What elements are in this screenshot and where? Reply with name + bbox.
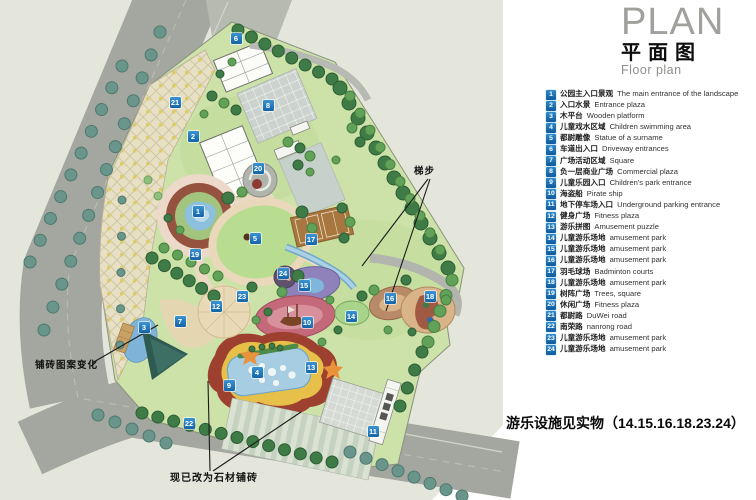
- legend-item-18: 18儿童游乐场地amusement park: [546, 278, 754, 289]
- legend-number: 9: [546, 178, 556, 188]
- legend-item-23: 23儿童游乐场地amusement park: [546, 333, 754, 344]
- annotation-paving-change: 铺砖图案变化: [35, 357, 98, 371]
- legend-label: 游乐拼图Amusement puzzle: [560, 222, 659, 232]
- map-marker-15: 15: [299, 280, 310, 291]
- legend-item-3: 3木平台Wooden platform: [546, 111, 754, 122]
- map-marker-7: 7: [175, 316, 186, 327]
- map-marker-8: 8: [263, 100, 274, 111]
- map-marker-13: 13: [306, 362, 317, 373]
- legend-number: 22: [546, 322, 556, 332]
- map-marker-2: 2: [188, 131, 199, 142]
- legend-label: 儿童游乐场地amusement park: [560, 255, 666, 265]
- legend-number: 10: [546, 189, 556, 199]
- map-marker-22: 22: [184, 418, 195, 429]
- legend-label: 儿童乐园入口Children's park entrance: [560, 178, 692, 188]
- legend-item-15: 15儿童游乐场地amusement park: [546, 244, 754, 255]
- legend-number: 23: [546, 334, 556, 344]
- legend-label: 车道出入口Driveway entrances: [560, 144, 669, 154]
- legend-label: 公园主入口景观The main entrance of the landscap…: [560, 89, 738, 99]
- map-marker-11: 11: [368, 426, 379, 437]
- legend-item-1: 1公园主入口景观The main entrance of the landsca…: [546, 89, 754, 100]
- legend-number: 8: [546, 167, 556, 177]
- legend-label: 儿童游乐场地amusement park: [560, 244, 666, 254]
- legend-number: 18: [546, 278, 556, 288]
- legend-item-22: 22南荣路nanrong road: [546, 322, 754, 333]
- legend-number: 14: [546, 234, 556, 244]
- legend-number: 20: [546, 300, 556, 310]
- legend-item-11: 11地下停车场入口Underground parking entrance: [546, 200, 754, 211]
- map-marker-3: 3: [139, 322, 150, 333]
- legend-label: 都尉雕像Statue of a surname: [560, 133, 663, 143]
- legend-number: 1: [546, 90, 556, 100]
- legend-label: 海盗船Pirate ship: [560, 189, 623, 199]
- legend-item-6: 6车道出入口Driveway entrances: [546, 144, 754, 155]
- map-marker-24: 24: [278, 268, 289, 279]
- map-marker-16: 16: [385, 293, 396, 304]
- legend-number: 15: [546, 245, 556, 255]
- legend-item-10: 10海盗船Pirate ship: [546, 189, 754, 200]
- legend-label: 儿童游乐场地amusement park: [560, 333, 666, 343]
- map-marker-18: 18: [425, 291, 436, 302]
- map-marker-6: 6: [231, 33, 242, 44]
- title-floor-plan: Floor plan: [621, 64, 751, 77]
- map-marker-20: 20: [253, 163, 264, 174]
- map-marker-5: 5: [250, 233, 261, 244]
- map-marker-17: 17: [306, 234, 317, 245]
- legend-item-9: 9儿童乐园入口Children's park entrance: [546, 178, 754, 189]
- legend-item-12: 12健身广场Fitness plaza: [546, 211, 754, 222]
- legend-label: 南荣路nanrong road: [560, 322, 632, 332]
- legend-item-13: 13游乐拼图Amusement puzzle: [546, 222, 754, 233]
- legend-number: 2: [546, 101, 556, 111]
- floor-plan-sheet: 梯步 铺砖图案变化 现已改为石材铺砖 123456789101112131415…: [0, 0, 756, 500]
- legend-item-19: 19树阵广场Trees, square: [546, 289, 754, 300]
- site-plan-drawing: [0, 0, 540, 500]
- legend-number: 3: [546, 112, 556, 122]
- map-marker-21: 21: [170, 97, 181, 108]
- legend-number: 16: [546, 256, 556, 266]
- legend-number: 5: [546, 134, 556, 144]
- legend-item-14: 14儿童游乐场地amusement park: [546, 233, 754, 244]
- map-marker-23: 23: [237, 291, 248, 302]
- legend-label: 负一层商业广场Commercial plaza: [560, 167, 678, 177]
- legend-number: 4: [546, 123, 556, 133]
- legend-label: 羽毛球场Badminton courts: [560, 267, 653, 277]
- map-marker-10: 10: [302, 317, 313, 328]
- legend-item-4: 4儿童戏水区域Children swimming area: [546, 122, 754, 133]
- facilities-note: 游乐设施见实物（14.15.16.18.23.24）: [506, 413, 756, 433]
- annotation-stone-paving: 现已改为石材铺砖: [170, 469, 258, 484]
- legend-item-5: 5都尉雕像Statue of a surname: [546, 133, 754, 144]
- legend-label: 树阵广场Trees, square: [560, 289, 641, 299]
- map-marker-19: 19: [190, 249, 201, 260]
- map-marker-14: 14: [346, 311, 357, 322]
- legend-item-16: 16儿童游乐场地amusement park: [546, 255, 754, 266]
- legend-item-2: 2入口水景Entrance plaza: [546, 100, 754, 111]
- legend-label: 儿童游乐场地amusement park: [560, 344, 666, 354]
- legend-number: 6: [546, 145, 556, 155]
- legend-item-24: 24儿童游乐场地amusement park: [546, 344, 754, 355]
- legend-number: 7: [546, 156, 556, 166]
- legend-number: 21: [546, 311, 556, 321]
- map-marker-12: 12: [211, 301, 222, 312]
- legend-label: 木平台Wooden platform: [560, 111, 644, 121]
- legend-number: 19: [546, 289, 556, 299]
- map-marker-1: 1: [193, 206, 204, 217]
- legend-label: 入口水景Entrance plaza: [560, 100, 645, 110]
- legend-label: 健身广场Fitness plaza: [560, 211, 639, 221]
- legend-label: 都尉路DuWei road: [560, 311, 627, 321]
- legend-number: 11: [546, 200, 556, 210]
- title-plan: PLAN: [621, 2, 751, 42]
- legend-number: 12: [546, 212, 556, 222]
- legend-number: 24: [546, 345, 556, 355]
- legend-label: 广场活动区域Square: [560, 156, 634, 166]
- title-chinese: 平面图: [621, 43, 751, 63]
- map-marker-9: 9: [224, 380, 235, 391]
- title-block: PLAN 平面图 Floor plan: [621, 2, 751, 77]
- legend-label: 儿童游乐场地amusement park: [560, 233, 666, 243]
- legend-label: 儿童戏水区域Children swimming area: [560, 122, 691, 132]
- legend: 1公园主入口景观The main entrance of the landsca…: [546, 89, 754, 355]
- legend-number: 17: [546, 267, 556, 277]
- legend-item-8: 8负一层商业广场Commercial plaza: [546, 167, 754, 178]
- legend-label: 地下停车场入口Underground parking entrance: [560, 200, 720, 210]
- legend-item-7: 7广场活动区域Square: [546, 156, 754, 167]
- legend-number: 13: [546, 223, 556, 233]
- map-marker-4: 4: [252, 367, 263, 378]
- legend-item-21: 21都尉路DuWei road: [546, 311, 754, 322]
- legend-label: 休闲广场Fitness plaza: [560, 300, 639, 310]
- legend-item-17: 17羽毛球场Badminton courts: [546, 267, 754, 278]
- legend-label: 儿童游乐场地amusement park: [560, 278, 666, 288]
- legend-item-20: 20休闲广场Fitness plaza: [546, 300, 754, 311]
- annotation-steps: 梯步: [414, 163, 435, 177]
